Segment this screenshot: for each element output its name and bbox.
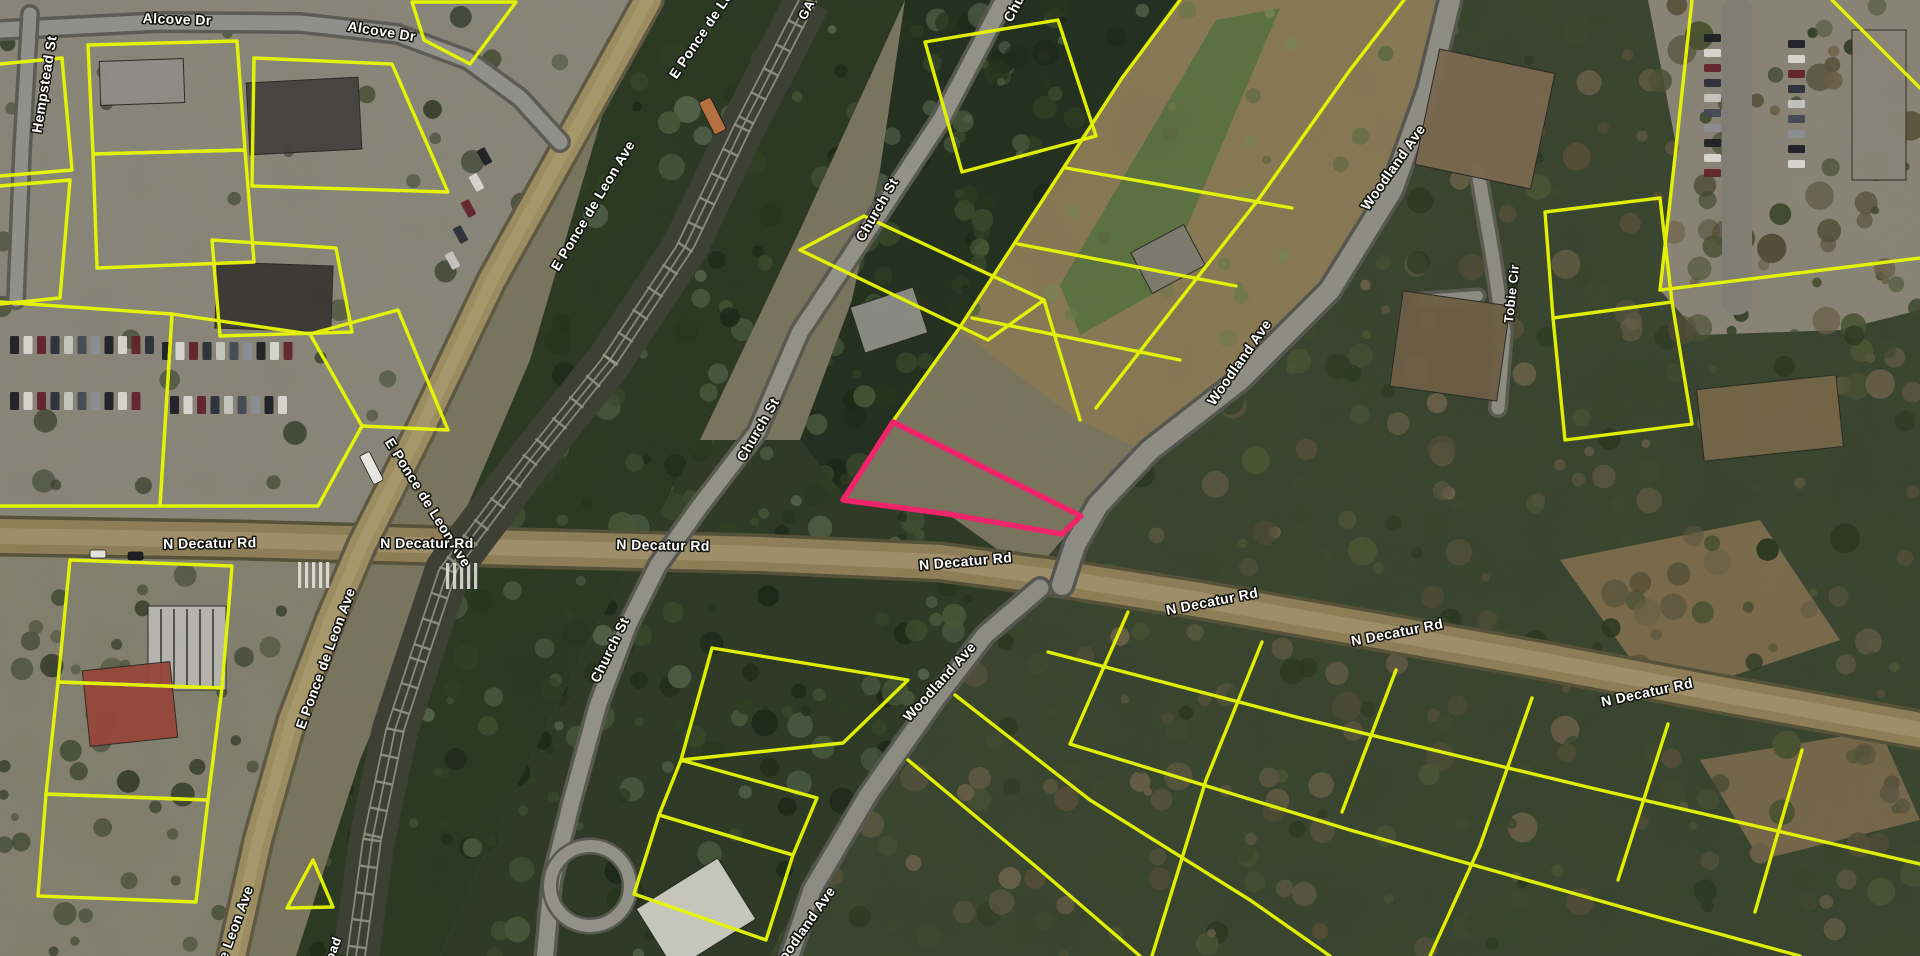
parked-car [1704, 94, 1721, 102]
parked-car [1704, 124, 1721, 132]
parked-car [1788, 115, 1805, 123]
parked-car [51, 392, 60, 410]
parked-car [78, 392, 87, 410]
parked-car [1788, 100, 1805, 108]
parked-car [278, 396, 287, 414]
parked-car [1704, 64, 1721, 72]
parked-car [37, 392, 46, 410]
parked-car [1704, 139, 1721, 147]
parked-car [1788, 145, 1805, 153]
parked-car [224, 396, 233, 414]
building [1415, 49, 1555, 189]
parked-car [64, 392, 73, 410]
parked-car [105, 392, 114, 410]
parked-car [189, 342, 198, 360]
building [1697, 375, 1844, 461]
parked-car [10, 392, 19, 410]
building [1390, 291, 1510, 401]
parked-car [105, 336, 114, 354]
parked-car [51, 336, 60, 354]
parked-car [1788, 85, 1805, 93]
parked-car [91, 336, 100, 354]
parked-car [230, 342, 239, 360]
parked-car [211, 396, 220, 414]
parked-car [203, 342, 212, 360]
building [1852, 30, 1906, 180]
parked-car [1788, 130, 1805, 138]
parked-car [265, 396, 274, 414]
parked-car [1704, 169, 1721, 177]
building [99, 59, 184, 106]
parked-car [170, 396, 179, 414]
parked-car [243, 342, 252, 360]
parked-car [184, 396, 193, 414]
parked-car [197, 396, 206, 414]
parked-car [1788, 55, 1805, 63]
parked-car [91, 392, 100, 410]
parked-car [1704, 34, 1721, 42]
parked-car [24, 392, 33, 410]
car [128, 552, 143, 560]
satellite-map[interactable]: Alcove DrAlcove DrHempstead StE Ponce de… [0, 0, 1920, 956]
building [246, 77, 362, 155]
building [82, 662, 177, 747]
parked-car [251, 396, 260, 414]
parked-car [10, 336, 19, 354]
parked-car [37, 336, 46, 354]
parked-car [1788, 70, 1805, 78]
parked-car [64, 336, 73, 354]
parked-car [118, 392, 127, 410]
parked-car [238, 396, 247, 414]
parked-car [216, 342, 225, 360]
parked-car [24, 336, 33, 354]
parked-car [1704, 109, 1721, 117]
street-label-alcove-dr: Alcove Dr [142, 10, 212, 28]
parked-car [257, 342, 266, 360]
car [90, 550, 106, 558]
parked-car [1704, 49, 1721, 57]
map-canvas: Alcove DrAlcove DrHempstead StE Ponce de… [0, 0, 1920, 956]
parked-car [176, 342, 185, 360]
parked-car [132, 392, 141, 410]
parked-car [1788, 40, 1805, 48]
street-label-n-decatur-rd: N Decatur Rd [163, 534, 257, 552]
street-label-n-decatur-rd: N Decatur Rd [380, 535, 473, 551]
parked-car [270, 342, 279, 360]
parked-car [1704, 79, 1721, 87]
parked-car [1704, 154, 1721, 162]
parked-car [132, 336, 141, 354]
parked-car [118, 336, 127, 354]
parked-car [145, 336, 154, 354]
parked-car [284, 342, 293, 360]
street-label-n-decatur-rd: N Decatur Rd [616, 536, 710, 554]
parked-car [1788, 160, 1805, 168]
parked-car [78, 336, 87, 354]
